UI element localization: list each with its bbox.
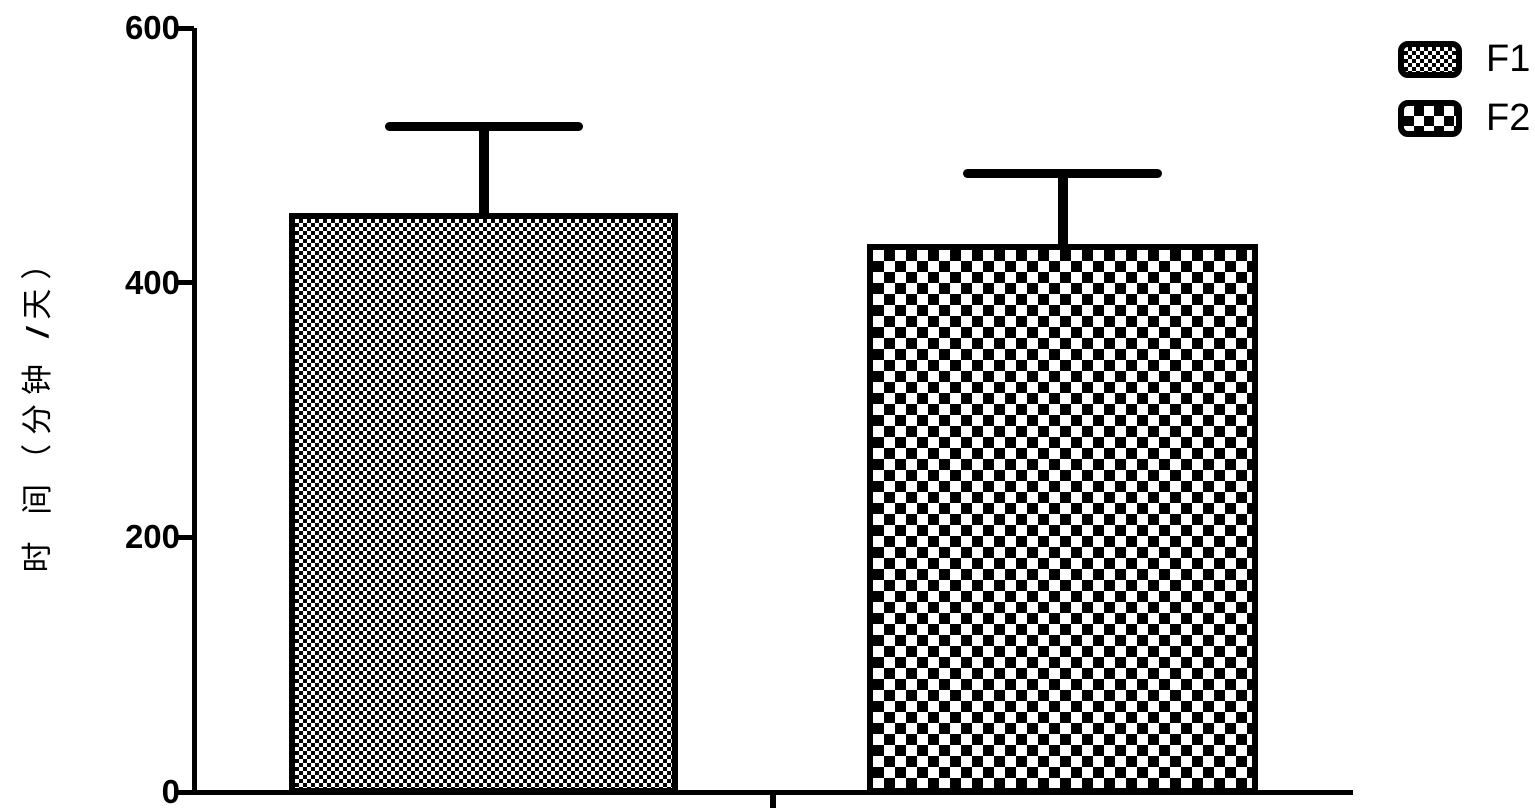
error-bar-cap-f2 <box>963 169 1162 178</box>
legend-label-f2: F2 <box>1486 99 1530 137</box>
y-tick-label-400: 400 <box>60 266 180 300</box>
legend-swatch-f1-checkerboard-icon <box>1398 41 1462 78</box>
bar-f2 <box>867 244 1258 794</box>
bar-f1 <box>289 213 678 794</box>
y-axis-title: 时 间（分钟 /天） <box>12 196 54 616</box>
y-tick-label-0: 0 <box>60 775 180 808</box>
legend-item-f1: F1 <box>1398 40 1530 78</box>
y-axis-title-suffix: 天） <box>20 240 55 320</box>
y-axis-line <box>192 28 197 794</box>
legend-item-f2: F2 <box>1398 99 1530 137</box>
x-axis-tick <box>770 792 776 808</box>
y-axis-title-prefix: 时 间（分钟 <box>20 337 55 572</box>
bar-chart: 时 间（分钟 /天） 600 400 200 0 F1 F2 <box>0 0 1535 808</box>
error-bar-cap-f1 <box>385 122 583 131</box>
error-bar-stem-f2 <box>1058 173 1068 250</box>
y-tick-label-600: 600 <box>60 11 180 45</box>
legend-label-f1: F1 <box>1486 40 1530 78</box>
y-axis-title-slash: / <box>20 320 55 338</box>
y-tick-label-200: 200 <box>60 520 180 554</box>
legend: F1 F2 <box>1398 40 1530 158</box>
legend-swatch-f2-checkerboard-icon <box>1398 100 1462 137</box>
error-bar-stem-f1 <box>479 126 489 219</box>
